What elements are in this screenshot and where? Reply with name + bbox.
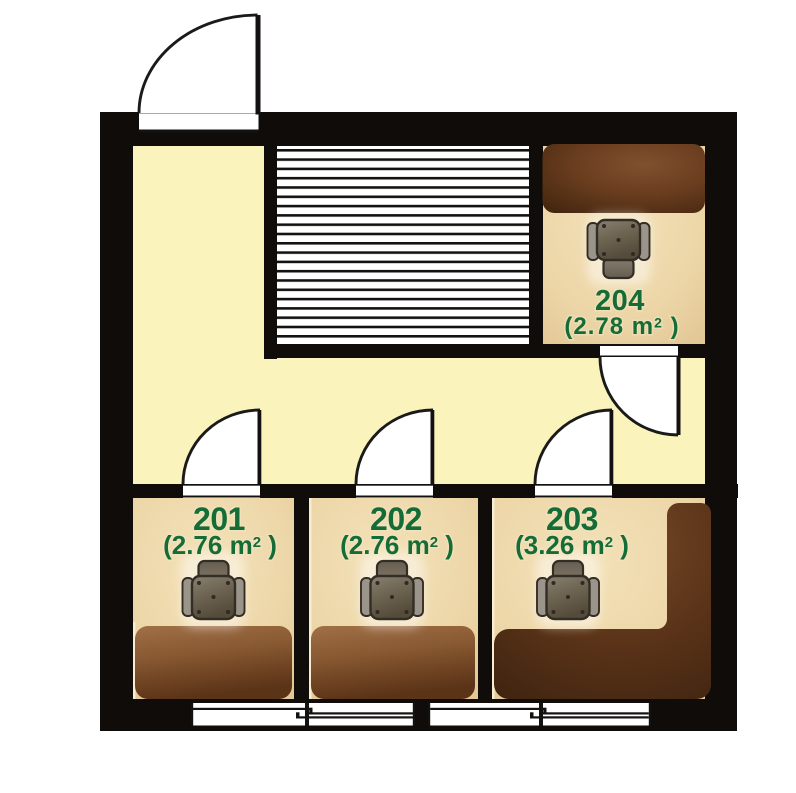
svg-text:(2.78 m2 ): (2.78 m2 )	[564, 313, 679, 340]
